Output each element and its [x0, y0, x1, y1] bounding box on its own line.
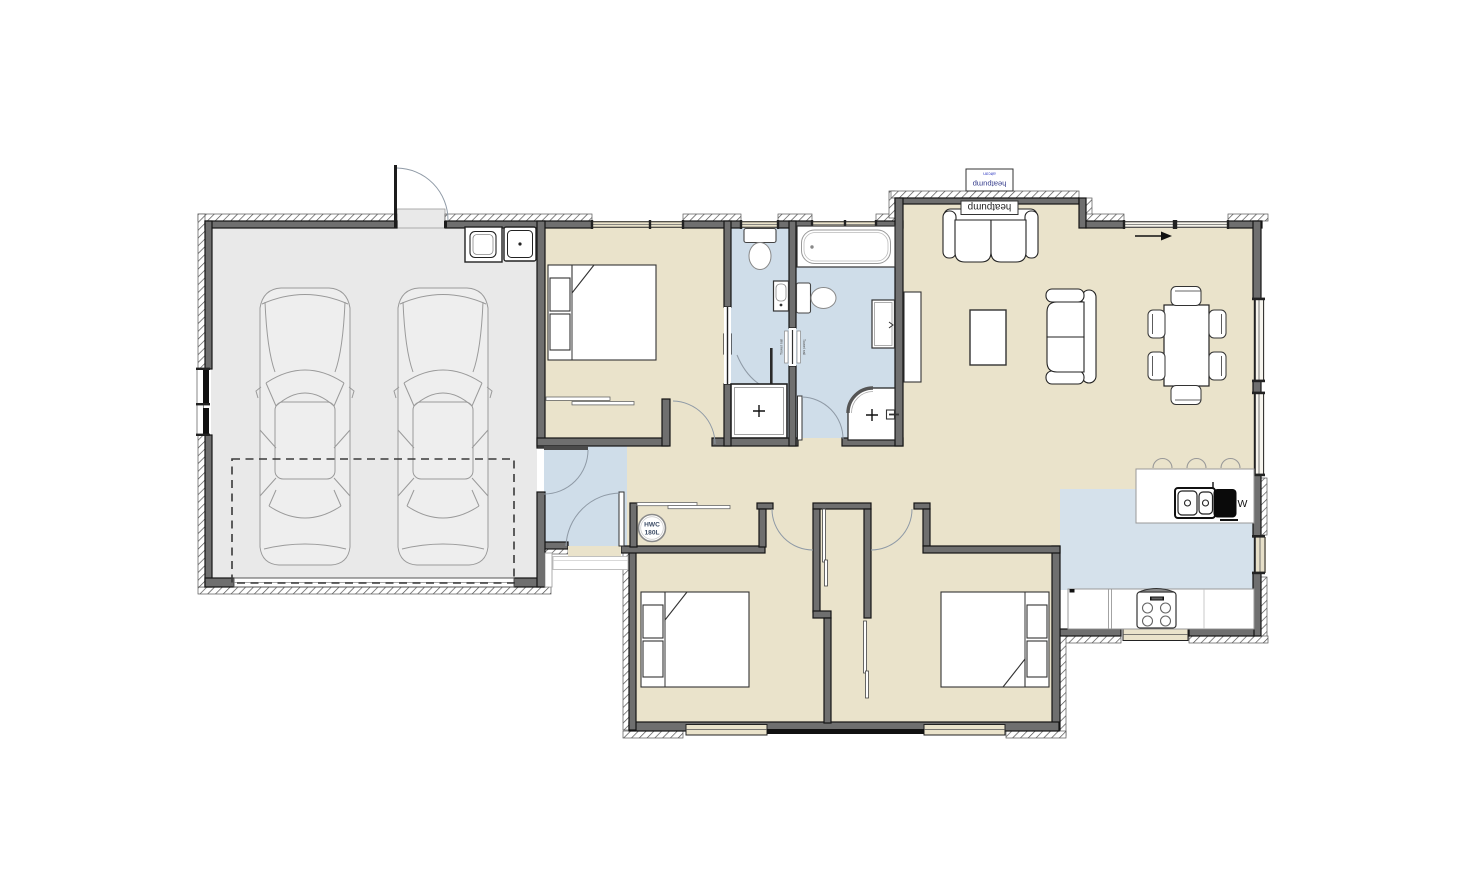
svg-text:heatpump: heatpump: [967, 201, 1011, 212]
svg-text:heatpump: heatpump: [973, 180, 1007, 189]
svg-text:W: W: [1238, 498, 1248, 510]
svg-text:180L: 180L: [644, 530, 659, 537]
svg-text:aircon: aircon: [983, 172, 996, 177]
svg-text:Towel rail: Towel rail: [779, 339, 784, 355]
svg-text:Towel rail: Towel rail: [802, 339, 807, 355]
svg-text:HWC: HWC: [644, 522, 660, 529]
